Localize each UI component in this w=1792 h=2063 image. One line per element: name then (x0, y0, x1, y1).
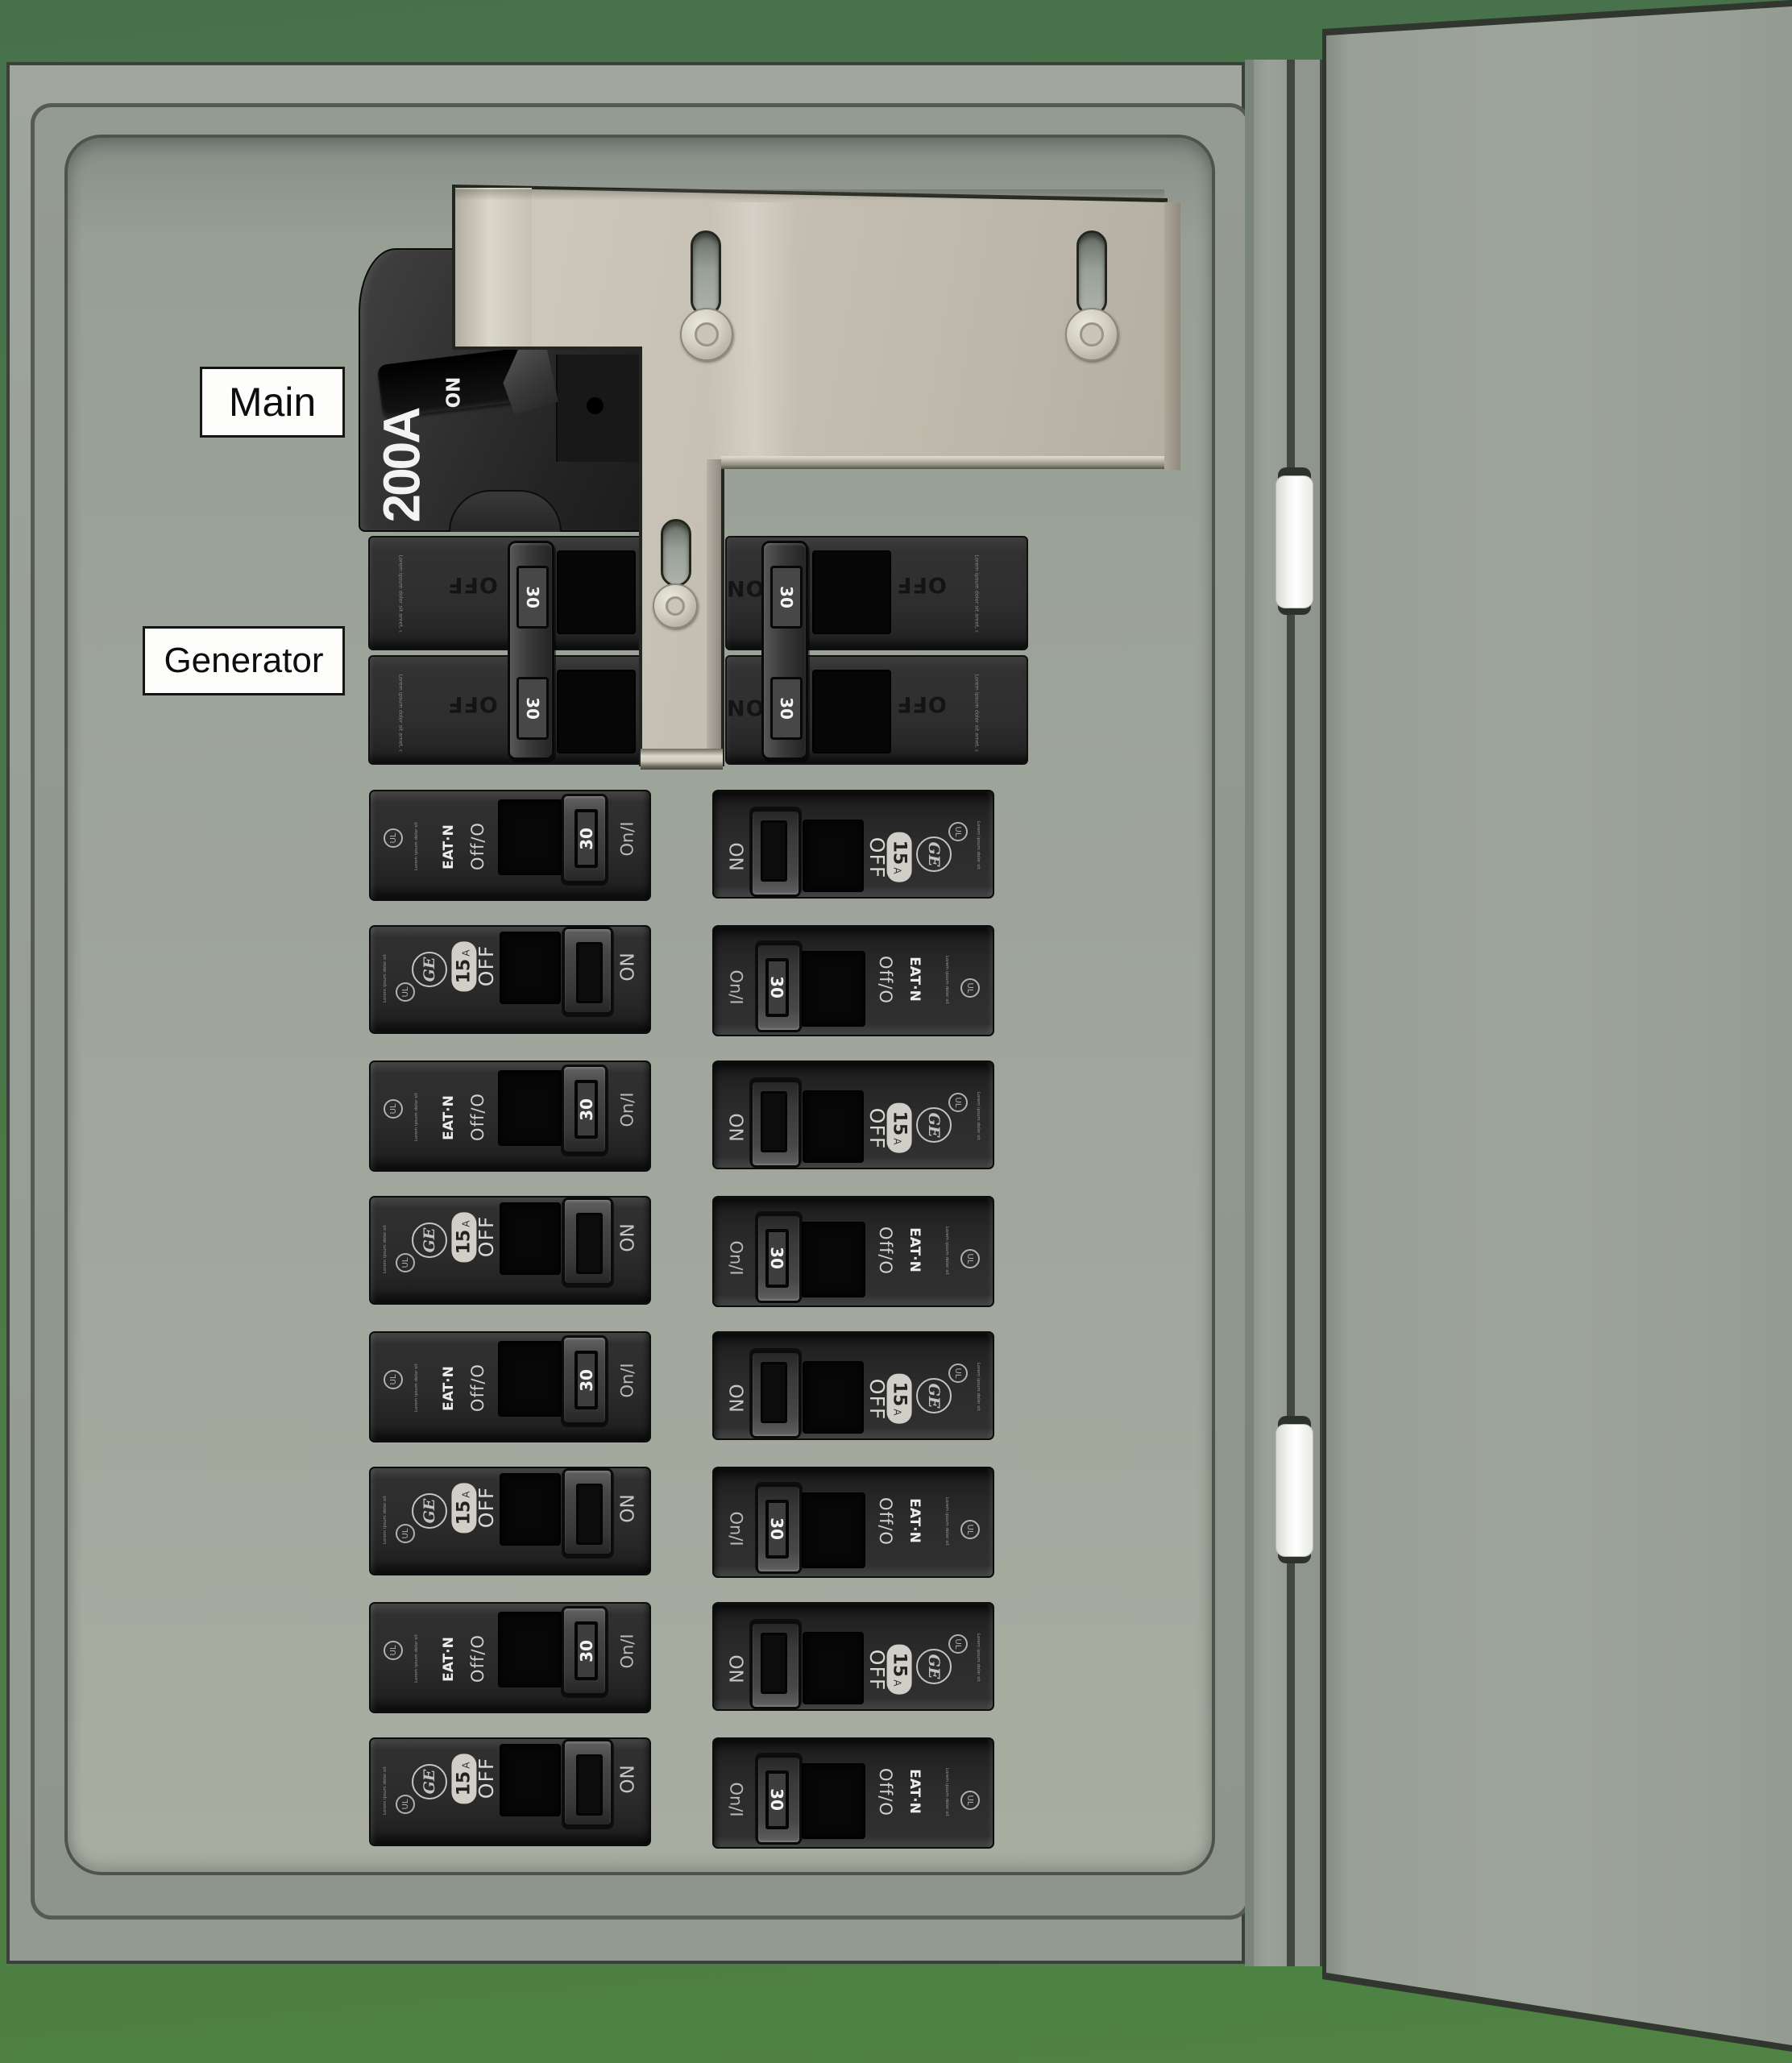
eaton-logo-text: EAT·N (906, 957, 923, 1002)
hinge-top (1276, 475, 1313, 608)
off-text: Off/O (876, 1227, 895, 1275)
amp-rating-pill: 15A (887, 1369, 912, 1429)
fine-print: Lorem ipsum dolor sit amet, consectetur … (935, 1494, 959, 1549)
on-text: On/I (726, 1240, 745, 1275)
fine-print: Lorem ipsum dolor sit amet, consectetur … (967, 812, 989, 879)
breaker-handle[interactable]: 30 (562, 794, 608, 883)
main-rating-text: 200A (371, 409, 431, 523)
eaton-logo: EAT·N (902, 954, 927, 1004)
fine-print-text: Lorem ipsum dolor sit amet, consectetur … (383, 954, 388, 1002)
breaker-handle[interactable] (750, 1080, 801, 1168)
breaker-handle[interactable]: 30 (562, 1335, 608, 1425)
breaker-left-2-ge: Lorem ipsum dolor sit amet, consectetur … (369, 925, 651, 1034)
amp-rating-pill: 15A (451, 936, 476, 996)
breaker-window (500, 1744, 561, 1816)
fine-print-text: Lorem ipsum dolor sit amet, consectetur … (944, 1497, 949, 1546)
ge-logo-text: GE (421, 1770, 438, 1795)
fine-print: Lorem ipsum dolor sit amet, consectetur … (374, 944, 396, 1012)
fine-print-text: Lorem ipsum dolor sit amet, consectetur … (944, 1227, 949, 1275)
ge-logo: GE (915, 1377, 952, 1414)
breaker-left-1-eaton: ULLorem ipsum dolor sit amet, consectetu… (369, 790, 651, 901)
ul-mark-text: UL (960, 1520, 980, 1539)
off-text: Off/O (468, 1093, 487, 1141)
off-label: Off/O (873, 1212, 898, 1289)
off-label: Off/O (873, 1483, 898, 1560)
amp-window: 30 (575, 1621, 598, 1680)
off-text: Off/O (876, 956, 895, 1004)
amp-window: 30 (765, 958, 789, 1017)
off-text: OFF (865, 1650, 889, 1691)
on-text: ON (618, 1765, 639, 1793)
amp-window: 30 (575, 809, 598, 868)
amp-window: 30 (765, 1229, 789, 1288)
eaton-logo: EAT·N (902, 1766, 927, 1816)
fine-print-text: Lorem ipsum dolor sit amet, consectetur … (414, 822, 419, 870)
on-label: On/I (723, 1502, 749, 1555)
breaker-window (803, 1361, 864, 1434)
fine-print-text: Lorem ipsum dolor sit amet, consectetur … (944, 956, 949, 1004)
ul-mark-icon: UL (382, 1639, 404, 1662)
fine-print-text: Lorem ipsum dolor sit amet, consectetur … (976, 1363, 981, 1411)
on-label: ON (616, 946, 641, 988)
ge-logo: GE (411, 1763, 448, 1800)
amp-value: 15 (890, 1111, 910, 1136)
on-label: On/I (615, 812, 641, 865)
fine-print: Lorem ipsum dolor sit amet, consectetur … (935, 953, 959, 1007)
on-text: ON (724, 1113, 745, 1141)
fine-print: Lorem ipsum dolor sit amet, consectetur … (404, 1360, 429, 1415)
eaton-logo: EAT·N (437, 822, 461, 872)
fine-print: Lorem ipsum dolor sit amet, consectetur … (935, 1223, 959, 1278)
eaton-logo-text: EAT·N (906, 1769, 923, 1814)
interlock-screw-arm (653, 583, 698, 629)
ul-mark-icon: UL (382, 1098, 404, 1120)
off-label: Off/O (466, 1620, 490, 1697)
main-callout-label: Main (200, 367, 345, 438)
ul-mark-text: UL (384, 1641, 403, 1660)
handle-slot (576, 1213, 603, 1274)
on-text: ON (618, 1223, 639, 1251)
breaker-handle[interactable]: 30 (756, 943, 802, 1032)
amp-unit: A (892, 1680, 903, 1687)
off-label: OFF (865, 1646, 889, 1695)
eaton-logo: EAT·N (437, 1364, 461, 1413)
off-text: OFF (865, 1379, 889, 1420)
amp-window: 30 (575, 1351, 598, 1409)
breaker-handle[interactable] (562, 1468, 613, 1556)
amp-rating-pill: 15A (451, 1207, 476, 1267)
amp-rating-pill: 15A (887, 1098, 912, 1158)
fine-print-text: Lorem ipsum dolor sit amet, consectetur … (383, 1766, 388, 1815)
handle-slot (761, 1091, 787, 1152)
eaton-logo: EAT·N (437, 1093, 461, 1143)
interlock-slot-right (1076, 230, 1107, 316)
ge-logo: GE (411, 1492, 448, 1530)
eaton-logo-text: EAT·N (441, 1366, 457, 1411)
breaker-handle[interactable] (562, 1739, 613, 1827)
off-text: Off/O (876, 1497, 895, 1546)
breaker-window (500, 932, 561, 1004)
ge-logo-text: GE (925, 1113, 943, 1138)
amp-text: 30 (577, 828, 596, 850)
breaker-right-8-eaton: ULLorem ipsum dolor sit amet, consectetu… (712, 1737, 994, 1849)
amp-rating-pill: 15A (451, 1749, 476, 1808)
amp-value: 15 (890, 841, 910, 865)
breaker-right-5-ge: Lorem ipsum dolor sit amet, consectetur … (712, 1331, 994, 1440)
breaker-handle[interactable]: 30 (756, 1484, 802, 1574)
ge-logo: GE (915, 1106, 952, 1144)
eaton-logo-text: EAT·N (906, 1227, 923, 1272)
amp-text: 30 (577, 1640, 596, 1662)
amp-value: 15 (890, 1653, 910, 1678)
handle-slot (576, 942, 603, 1003)
on-label: On/I (615, 1354, 641, 1407)
amp-text: 30 (768, 1518, 787, 1541)
amp-rating-pill: 15A (451, 1478, 476, 1538)
interlock-slot-arm (661, 519, 691, 587)
on-label: On/I (723, 1231, 749, 1285)
fine-print-text: Lorem ipsum dolor sit amet, consectetur … (414, 1634, 419, 1683)
amp-window: 30 (575, 1080, 598, 1139)
door-gap (1287, 60, 1295, 1966)
breaker-left-8-ge: Lorem ipsum dolor sit amet, consectetur … (369, 1737, 651, 1846)
off-text: Off/O (468, 1634, 487, 1683)
interlock-plate-fold (455, 188, 532, 347)
breaker-handle[interactable]: 30 (756, 1214, 802, 1303)
eaton-logo-text: EAT·N (906, 1498, 923, 1543)
on-text: ON (724, 1384, 745, 1412)
breaker-right-4-eaton: ULLorem ipsum dolor sit amet, consectetu… (712, 1196, 994, 1307)
amp-text: 30 (577, 1369, 596, 1392)
breaker-window (801, 1222, 865, 1297)
off-text: OFF (865, 837, 889, 878)
fine-print: Lorem ipsum dolor sit amet, consectetur … (967, 1624, 989, 1691)
breaker-window (801, 1492, 865, 1568)
amp-text: 30 (577, 1098, 596, 1121)
eaton-logo-text: EAT·N (441, 1637, 457, 1682)
off-text: OFF (475, 1486, 499, 1527)
breaker-window (498, 1070, 562, 1146)
off-label: OFF (475, 941, 499, 990)
breaker-left-3-eaton: ULLorem ipsum dolor sit amet, consectetu… (369, 1061, 651, 1172)
breaker-handle[interactable]: 30 (756, 1755, 802, 1845)
off-label: Off/O (873, 1754, 898, 1831)
on-label: ON (723, 836, 747, 878)
on-label: On/I (723, 961, 749, 1014)
breaker-right-3-ge: Lorem ipsum dolor sit amet, consectetur … (712, 1061, 994, 1169)
handle-slot (576, 1484, 603, 1545)
on-text: ON (724, 1654, 745, 1683)
on-text: ON (618, 1494, 639, 1522)
fine-print-text: Lorem ipsum dolor sit amet, consectetur … (976, 821, 981, 870)
ul-mark-icon: UL (959, 1789, 981, 1812)
amp-value: 15 (454, 1500, 474, 1525)
off-label: OFF (475, 1483, 499, 1531)
amp-unit: A (892, 1409, 903, 1416)
ge-logo: GE (411, 951, 448, 988)
fine-print-text: Lorem ipsum dolor sit amet, consectetur … (383, 1225, 388, 1273)
breaker-window (500, 1473, 561, 1546)
on-text: On/I (726, 1782, 745, 1816)
ge-logo-text: GE (925, 842, 943, 867)
breaker-window (498, 1341, 562, 1417)
breaker-handle[interactable] (750, 1621, 801, 1709)
breaker-right-7-ge: Lorem ipsum dolor sit amet, consectetur … (712, 1602, 994, 1711)
off-text: OFF (475, 1215, 499, 1256)
off-label: OFF (865, 834, 889, 882)
ul-mark-text: UL (384, 1370, 403, 1389)
ul-mark-text: UL (960, 1791, 980, 1810)
ul-mark-icon: UL (959, 1518, 981, 1541)
fine-print: Lorem ipsum dolor sit amet, consectetur … (374, 1486, 396, 1554)
amp-unit: A (460, 1491, 471, 1497)
off-label: OFF (865, 1376, 889, 1424)
on-text: ON (618, 953, 639, 981)
off-text: OFF (475, 1757, 499, 1798)
off-text: Off/O (876, 1768, 895, 1816)
on-text: On/I (618, 1633, 637, 1668)
breaker-handle[interactable]: 30 (562, 1606, 608, 1696)
eaton-logo: EAT·N (437, 1634, 461, 1684)
eaton-logo: EAT·N (902, 1225, 927, 1275)
off-label: Off/O (873, 941, 898, 1019)
eaton-logo-text: EAT·N (441, 1095, 457, 1140)
door-edge-face (1295, 60, 1320, 1966)
breaker-window (498, 1612, 562, 1687)
handle-slot (761, 820, 787, 882)
fine-print: Lorem ipsum dolor sit amet, consectetur … (404, 819, 429, 874)
cabinet-right-edge-shade (1245, 60, 1254, 1966)
cabinet-right-side-wall (1254, 60, 1287, 1966)
breaker-left-6-ge: Lorem ipsum dolor sit amet, consectetur … (369, 1467, 651, 1575)
fine-print-text: Lorem ipsum dolor sit amet, consectetur … (414, 1364, 419, 1412)
fine-print-text: Lorem ipsum dolor sit amet, consectetur … (944, 1768, 949, 1816)
breaker-window (801, 1763, 865, 1839)
off-label: Off/O (466, 807, 490, 885)
amp-window: 30 (765, 1770, 789, 1829)
ul-mark-icon: UL (959, 1247, 981, 1270)
off-text: Off/O (468, 1364, 487, 1412)
amp-rating-pill: 15A (887, 828, 912, 887)
on-label: On/I (615, 1625, 641, 1678)
interlock-arm-right-bevel (707, 459, 721, 763)
amp-text: 30 (768, 977, 787, 999)
off-text: OFF (475, 944, 499, 986)
on-label: ON (723, 1648, 747, 1690)
interlock-screw-left (680, 308, 733, 361)
fine-print-text: Lorem ipsum dolor sit amet, consectetur … (976, 1633, 981, 1682)
on-label: ON (723, 1106, 747, 1148)
ge-logo-text: GE (925, 1384, 943, 1409)
breaker-handle[interactable]: 30 (562, 1065, 608, 1154)
on-text: On/I (618, 1363, 637, 1397)
off-text: OFF (865, 1108, 889, 1149)
breaker-right-2-eaton: ULLorem ipsum dolor sit amet, consectetu… (712, 925, 994, 1036)
eaton-logo: EAT·N (902, 1496, 927, 1546)
ge-logo-text: GE (421, 957, 438, 982)
fine-print-text: Lorem ipsum dolor sit amet, consectetur … (383, 1496, 388, 1544)
interlock-slot-left (691, 230, 721, 316)
fine-print-text: Lorem ipsum dolor sit amet, consectetur … (414, 1093, 419, 1141)
amp-unit: A (460, 1220, 471, 1227)
breaker-left-5-eaton: ULLorem ipsum dolor sit amet, consectetu… (369, 1331, 651, 1442)
amp-window: 30 (765, 1500, 789, 1559)
generator-callout-text: Generator (164, 641, 323, 681)
ul-mark-text: UL (384, 828, 403, 848)
ul-mark-icon: UL (382, 827, 404, 849)
amp-rating-pill: 15A (887, 1640, 912, 1700)
fine-print: Lorem ipsum dolor sit amet, consectetur … (935, 1765, 959, 1820)
breaker-left-7-eaton: ULLorem ipsum dolor sit amet, consectetu… (369, 1602, 651, 1713)
handle-slot (576, 1754, 603, 1816)
fine-print-text: Lorem ipsum dolor sit amet, consectetur … (976, 1092, 981, 1140)
amp-unit: A (892, 1139, 903, 1145)
on-label: ON (616, 1488, 641, 1530)
interlock-arm-bottom-bevel (641, 749, 723, 770)
breaker-window (801, 951, 865, 1027)
breaker-handle[interactable] (562, 1198, 613, 1285)
off-label: OFF (475, 1754, 499, 1802)
ge-logo-text: GE (421, 1499, 438, 1524)
ul-mark-text: UL (960, 978, 980, 998)
ul-mark-text: UL (960, 1249, 980, 1268)
fine-print: Lorem ipsum dolor sit amet, consectetur … (404, 1631, 429, 1686)
ge-logo: GE (915, 836, 952, 873)
door-panel (1326, 0, 1792, 2063)
fine-print: Lorem ipsum dolor sit amet, consectetur … (967, 1082, 989, 1150)
amp-value: 15 (454, 958, 474, 983)
fine-print: Lorem ipsum dolor sit amet, consectetur … (374, 1215, 396, 1283)
breaker-handle[interactable] (750, 1351, 801, 1438)
off-label: OFF (475, 1212, 499, 1260)
breaker-window (803, 1632, 864, 1704)
amp-text: 30 (768, 1247, 787, 1270)
on-text: On/I (618, 1092, 637, 1127)
amp-unit: A (460, 1762, 471, 1768)
on-label: ON (723, 1377, 747, 1419)
breaker-handle[interactable] (562, 927, 613, 1015)
amp-value: 15 (890, 1382, 910, 1407)
interlock-plate-bottom-bevel (721, 456, 1164, 469)
off-label: Off/O (466, 1078, 490, 1156)
ge-logo-text: GE (421, 1228, 438, 1253)
breaker-window (803, 1090, 864, 1163)
amp-text: 30 (768, 1789, 787, 1812)
on-text: On/I (618, 821, 637, 856)
ul-mark-text: UL (384, 1099, 403, 1119)
breaker-right-1-ge: Lorem ipsum dolor sit amet, consectetur … (712, 790, 994, 899)
amp-unit: A (892, 868, 903, 874)
breaker-left-4-ge: Lorem ipsum dolor sit amet, consectetur … (369, 1196, 651, 1305)
eaton-logo-text: EAT·N (441, 824, 457, 870)
on-label: ON (616, 1758, 641, 1800)
fine-print: Lorem ipsum dolor sit amet, consectetur … (374, 1757, 396, 1824)
ge-logo: GE (411, 1222, 448, 1259)
on-label: On/I (615, 1083, 641, 1136)
interlock-screw-right (1065, 308, 1118, 361)
breaker-window (803, 820, 864, 892)
handle-slot (761, 1633, 787, 1694)
ul-mark-icon: UL (382, 1368, 404, 1391)
interlock-plate-top-edge (455, 189, 1164, 201)
main-rating-label: 200A (371, 406, 431, 525)
hinge-bottom (1276, 1424, 1313, 1557)
amp-value: 15 (454, 1229, 474, 1254)
on-label: On/I (723, 1773, 749, 1826)
ul-mark-icon: UL (959, 977, 981, 999)
fine-print-text: Lorem ipsum dolor sit amet, consectetur … (398, 674, 404, 751)
off-label: OFF (865, 1105, 889, 1153)
fine-print: Lorem ipsum dolor sit amet, consectetur … (967, 1353, 989, 1421)
fine-print: Lorem ipsum dolor sit amet, consectetur … (404, 1090, 429, 1144)
breaker-handle[interactable] (750, 809, 801, 897)
generator-interlock-plate (452, 185, 1187, 773)
on-text: On/I (726, 969, 745, 1004)
fine-print: Lorem ipsum dolor sit amet, consectetur … (384, 670, 417, 755)
main-callout-text: Main (229, 379, 316, 425)
breaker-window (498, 799, 562, 875)
interlock-plate-right-bevel (1164, 202, 1180, 471)
ge-logo-text: GE (925, 1654, 943, 1679)
ge-logo: GE (915, 1648, 952, 1685)
on-label: ON (616, 1217, 641, 1259)
off-text: Off/O (468, 822, 487, 870)
panel-illustration: ON 200A ULLorem ipsum dolor sit amet, co… (0, 0, 1792, 2063)
breaker-right-6-eaton: ULLorem ipsum dolor sit amet, consectetu… (712, 1467, 994, 1578)
off-label: Off/O (466, 1349, 490, 1426)
generator-callout-label: Generator (143, 626, 345, 695)
amp-value: 15 (454, 1770, 474, 1795)
breaker-window (500, 1202, 561, 1275)
fine-print-text: Lorem ipsum dolor sit amet, consectetur … (398, 554, 404, 632)
fine-print: Lorem ipsum dolor sit amet, consectetur … (384, 550, 417, 636)
on-text: On/I (726, 1511, 745, 1546)
handle-slot (761, 1362, 787, 1423)
amp-unit: A (460, 949, 471, 956)
on-text: ON (724, 842, 745, 870)
